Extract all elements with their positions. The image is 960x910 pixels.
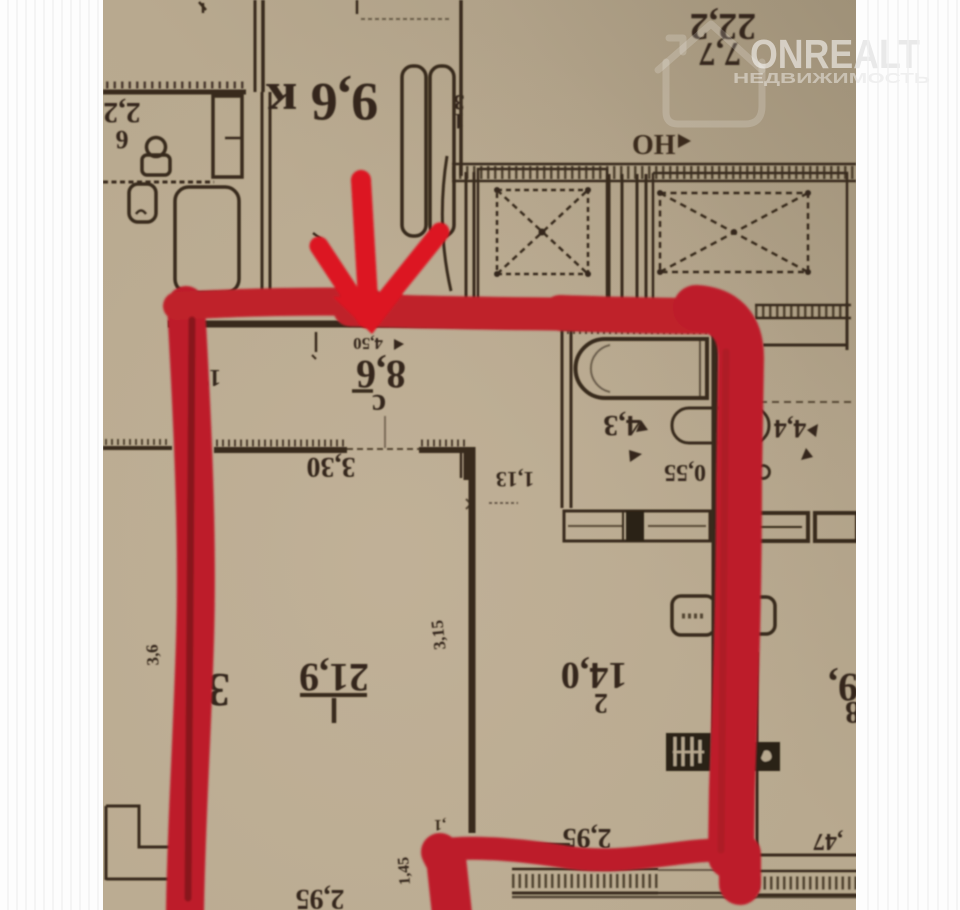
- svg-text:2,95: 2,95: [296, 883, 345, 910]
- svg-text:3,15: 3,15: [427, 619, 449, 651]
- svg-text:0,55: 0,55: [664, 459, 706, 485]
- svg-text:7,7: 7,7: [699, 35, 742, 72]
- svg-text:1,45: 1,45: [395, 856, 414, 885]
- svg-text:9,6 к: 9,6 к: [265, 72, 378, 132]
- svg-text:4,4: 4,4: [774, 414, 807, 443]
- svg-text:,47: ,47: [813, 828, 843, 854]
- svg-text:6: 6: [116, 125, 129, 154]
- svg-text:4,3: 4,3: [603, 409, 641, 442]
- svg-text:3,6: 3,6: [142, 644, 162, 666]
- svg-text:с: с: [372, 388, 386, 424]
- svg-text:,1: ,1: [434, 816, 446, 833]
- svg-text:4,50: 4,50: [353, 334, 383, 353]
- svg-text:2,2: 2,2: [103, 96, 141, 129]
- svg-text:3,30: 3,30: [307, 451, 356, 482]
- svg-text:1,13: 1,13: [496, 467, 535, 492]
- svg-text:ОН: ОН: [632, 130, 676, 161]
- svg-text:14,0: 14,0: [561, 654, 628, 696]
- svg-text:2: 2: [594, 687, 608, 718]
